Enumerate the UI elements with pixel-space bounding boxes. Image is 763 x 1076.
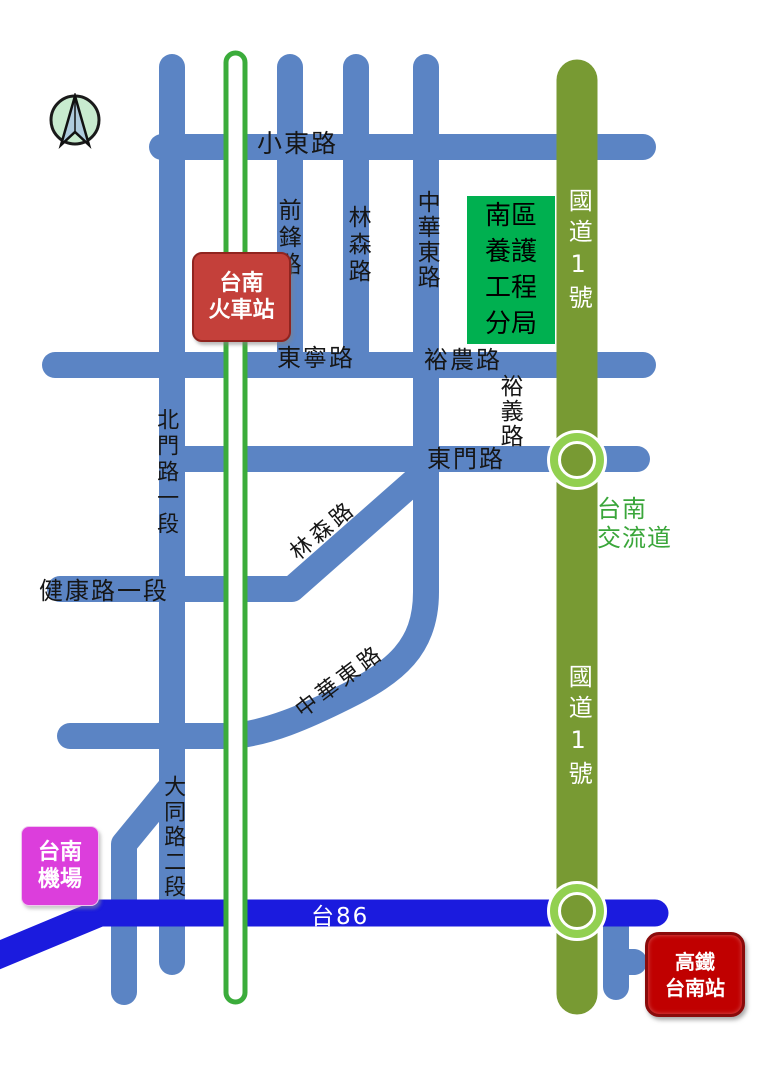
road-label-beimen-sec1: 北門路一段: [154, 408, 177, 538]
airport-line1: 台南: [38, 839, 82, 866]
train-station-line1: 台南: [219, 270, 263, 297]
office-line2: 養護: [485, 234, 537, 270]
road-label-jiankang-sec1: 健康路一段: [39, 578, 169, 604]
train-station-line2: 火車站: [208, 297, 274, 324]
road-label-yunong: 裕農路: [424, 347, 502, 373]
maintenance-office-badge: 南區 養護 工程 分局: [467, 196, 555, 344]
office-line3: 工程: [485, 270, 537, 306]
interchange-label-line1: 台南: [597, 495, 672, 524]
road-label-dongning: 東寧路: [277, 345, 355, 371]
north-arrow-compass-icon: [49, 93, 101, 151]
office-line4: 分局: [485, 306, 537, 342]
road-label-datong-sec2: 大同路二段: [161, 775, 184, 900]
airport-line2: 機場: [38, 866, 82, 893]
interchange-label: 台南 交流道: [597, 495, 672, 553]
train-station-badge: 台南 火車站: [192, 252, 291, 342]
railway-track: [226, 53, 245, 1002]
hsr-station-badge: 高鐵 台南站: [645, 932, 745, 1017]
road-zhonghua-east-path: [70, 67, 426, 736]
road-label-dongmen: 東門路: [427, 446, 505, 472]
road-label-linsen-north: 林森路: [345, 205, 369, 286]
tainan-route-map: 小東路 東寧路 裕農路 東門路 健康路一段 前鋒路 林森路 中華東路 裕義路 北…: [0, 0, 763, 1076]
office-line1: 南區: [485, 198, 537, 234]
interchange-label-line2: 交流道: [597, 524, 672, 553]
road-label-yuyi: 裕義路: [497, 374, 521, 449]
road-label-xiaodong: 小東路: [257, 130, 338, 158]
highway-label-national1-south: 國道1號: [565, 664, 590, 792]
hsr-station-line2: 台南站: [665, 975, 725, 1001]
expressway-label-tai86: 台86: [311, 897, 369, 931]
airport-badge: 台南 機場: [21, 826, 99, 906]
hsr-station-line1: 高鐵: [675, 949, 715, 975]
highway-label-national1-north: 國道1號: [565, 188, 590, 316]
road-label-zhonghua-east-north: 中華東路: [414, 190, 438, 290]
